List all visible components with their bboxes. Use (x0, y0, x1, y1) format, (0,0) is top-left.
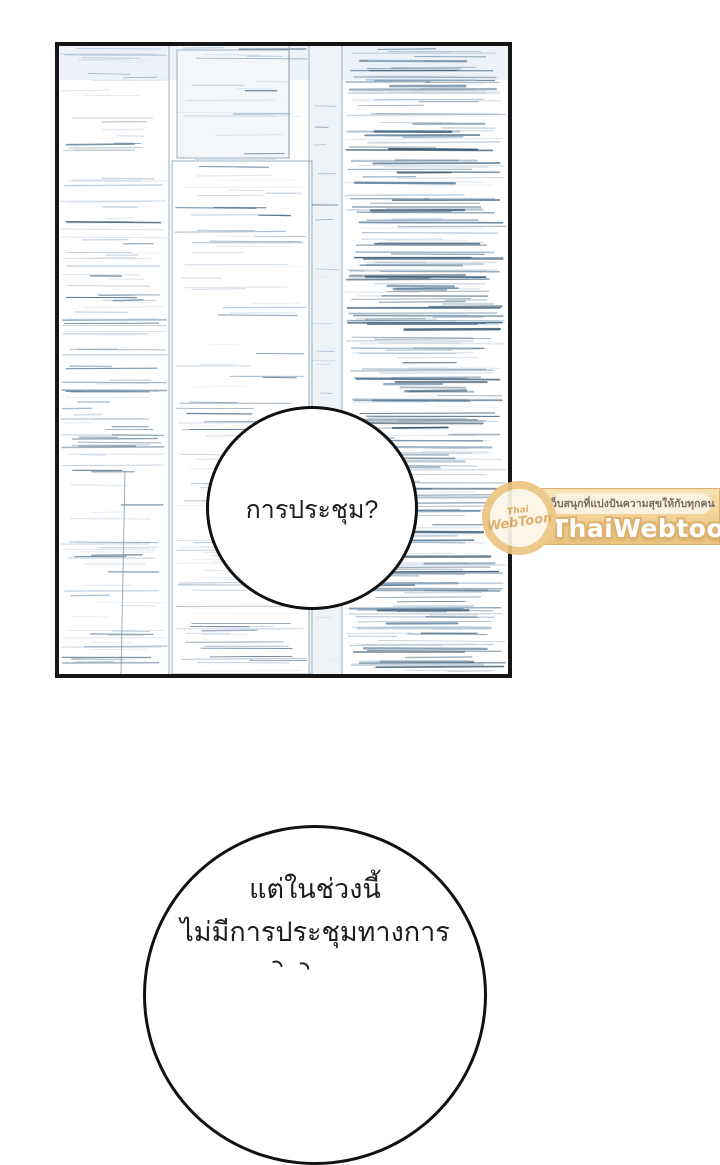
speech-text-line2: ไม่มีการประชุมทางการ (146, 911, 484, 954)
watermark-badge-line2: WebToon (486, 511, 553, 534)
speech-text-meeting: การประชุม? (246, 486, 379, 530)
speech-bubble-no-meeting: แต่ในช่วงนี้ ไม่มีการประชุมทางการ (143, 825, 487, 1165)
speech-bubble-meeting: การประชุม? (206, 406, 418, 610)
speech-text-line1: แต่ในช่วงนี้ (146, 868, 484, 911)
watermark-brand-text: ThaiWebtoon (551, 514, 719, 543)
clipped-text-fragment (272, 959, 283, 969)
clipped-text-fragment (300, 962, 310, 971)
webtoon-page: การประชุม? เว็บสนุกที่แบ่งปันความสุขให้ก… (0, 0, 720, 966)
watermark-tagline-text: เว็บสนุกที่แบ่งปันความสุขให้กับทุกคน (547, 495, 714, 512)
watermark-tagline-pill: เว็บสนุกที่แบ่งปันความสุขให้กับทุกคน (551, 493, 711, 514)
thaiwebtoon-watermark: เว็บสนุกที่แบ่งปันความสุขให้กับทุกคน Tha… (474, 481, 720, 559)
